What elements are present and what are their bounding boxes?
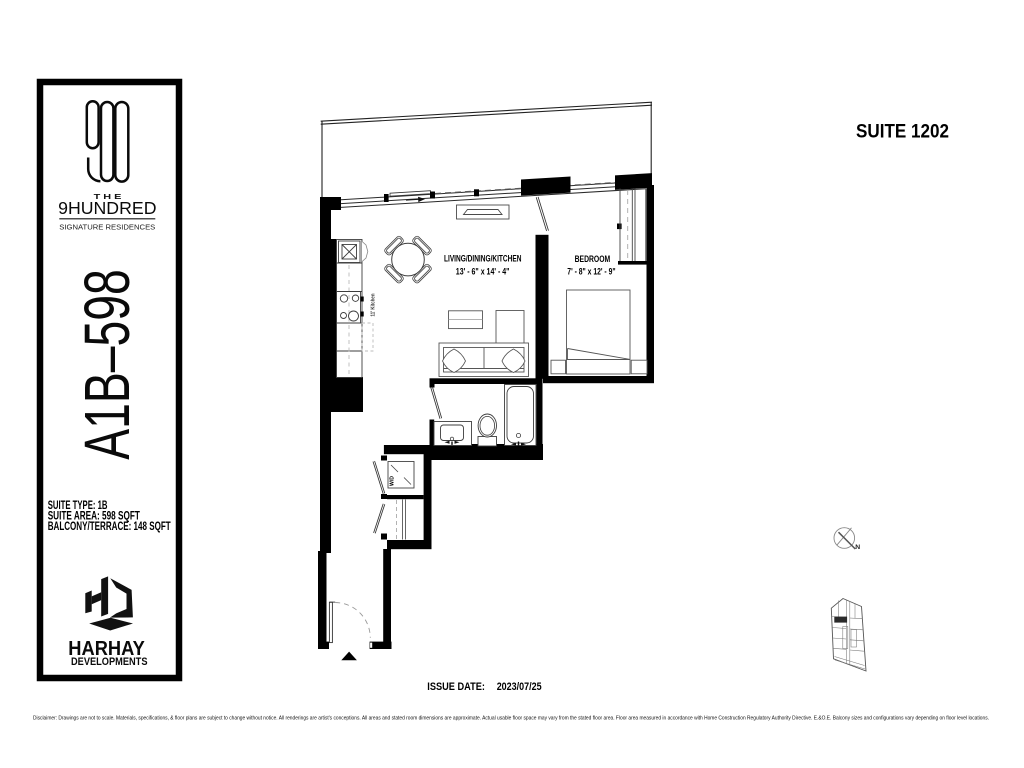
svg-text:11' Kitchen: 11' Kitchen xyxy=(371,294,377,317)
svg-text:LIVING/DINING/KITCHEN: LIVING/DINING/KITCHEN xyxy=(444,254,522,264)
svg-text:A1B–598: A1B–598 xyxy=(71,269,143,460)
svg-text:2023/07/25: 2023/07/25 xyxy=(497,681,542,693)
svg-text:7' - 8" x 12' - 9": 7' - 8" x 12' - 9" xyxy=(567,267,615,277)
svg-text:BEDROOM: BEDROOM xyxy=(575,254,611,264)
svg-text:DEVELOPMENTS: DEVELOPMENTS xyxy=(71,656,148,668)
svg-text:13' - 6" x 14' - 4": 13' - 6" x 14' - 4" xyxy=(456,266,510,276)
svg-text:SIGNATURE RESIDENCES: SIGNATURE RESIDENCES xyxy=(59,222,155,231)
svg-text:Disclaimer: Drawings are not t: Disclaimer: Drawings are not to scale. M… xyxy=(33,716,989,722)
svg-text:BALCONY/TERRACE: 148 SQFT: BALCONY/TERRACE: 148 SQFT xyxy=(48,519,172,533)
svg-text:9HUNDRED: 9HUNDRED xyxy=(58,198,156,218)
svg-text:SUITE 1202: SUITE 1202 xyxy=(856,121,949,143)
svg-text:ISSUE DATE:: ISSUE DATE: xyxy=(427,681,485,693)
svg-text:W/D: W/D xyxy=(390,476,396,486)
svg-text:N: N xyxy=(855,544,860,551)
